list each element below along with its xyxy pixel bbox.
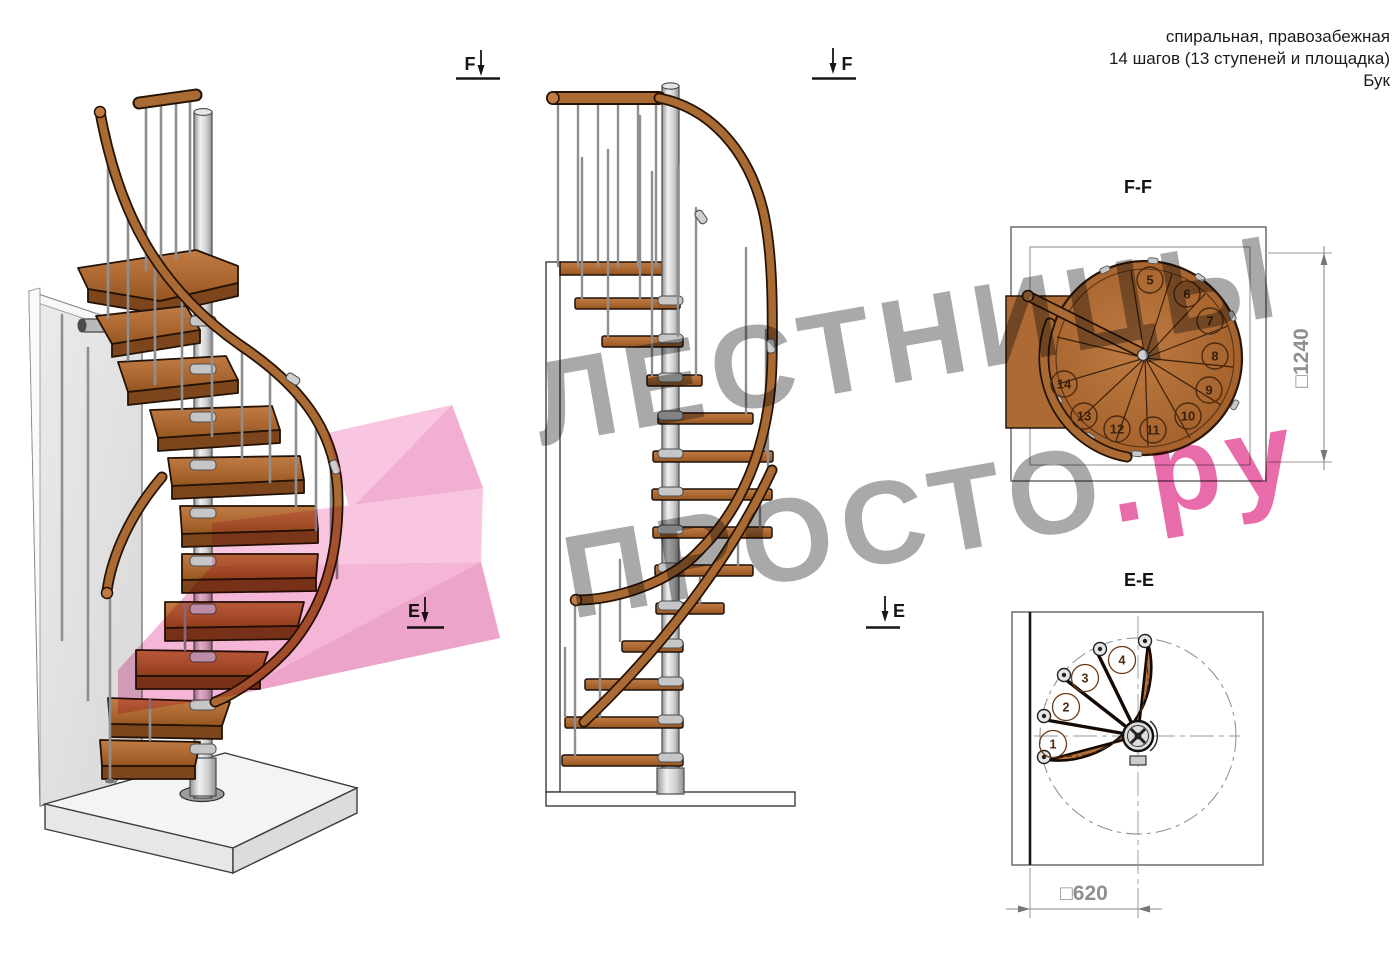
section-plan-ee: E-E 1 — [1006, 570, 1263, 918]
left-3d-view — [29, 95, 357, 873]
stair-steps: 14 шагов (13 ступеней и площадка) — [1109, 48, 1390, 70]
step-number: 7 — [1206, 314, 1213, 329]
ee-title: E-E — [1124, 570, 1154, 590]
step-number: 10 — [1181, 409, 1195, 424]
section-marker-e-left: E — [407, 597, 444, 628]
ff-dimension-text: □1240 — [1290, 328, 1313, 387]
marker-letter: E — [408, 601, 420, 621]
step-number: 3 — [1082, 672, 1089, 686]
center-column — [190, 109, 216, 798]
technical-drawing: F F E E F-F — [0, 0, 1400, 961]
step-number: 2 — [1063, 701, 1070, 715]
step-number: 1 — [1050, 738, 1057, 752]
step-number: 4 — [1119, 654, 1126, 668]
info-block: спиральная, правозабежная 14 шагов (13 с… — [1109, 26, 1390, 92]
ff-title: F-F — [1124, 177, 1152, 197]
step-number: 12 — [1110, 422, 1124, 437]
elevation-view — [546, 83, 795, 806]
stair-type: спиральная, правозабежная — [1109, 26, 1390, 48]
drawing-sheet: F F E E F-F — [0, 0, 1400, 961]
marker-letter: F — [465, 54, 476, 74]
section-marker-f-left: F — [456, 50, 500, 79]
guardrail — [547, 92, 659, 104]
step-number: 14 — [1057, 377, 1072, 392]
ee-dimension: □620 — [1006, 868, 1162, 918]
step-number: 13 — [1077, 409, 1091, 424]
ff-dimension: □1240 — [1268, 246, 1332, 470]
section-marker-f-middle: F — [812, 48, 856, 79]
ee-dimension-text: □620 — [1060, 882, 1108, 905]
step-number: 6 — [1183, 287, 1190, 302]
step-number: 8 — [1211, 349, 1218, 364]
marker-letter: E — [893, 601, 905, 621]
step-number: 11 — [1146, 423, 1160, 438]
step-number: 5 — [1146, 273, 1153, 288]
marker-letter: F — [842, 54, 853, 74]
section-marker-e-middle: E — [866, 596, 905, 628]
step-number: 9 — [1205, 383, 1212, 398]
section-plan-ff: F-F — [1006, 177, 1332, 481]
stair-material: Бук — [1109, 70, 1390, 92]
